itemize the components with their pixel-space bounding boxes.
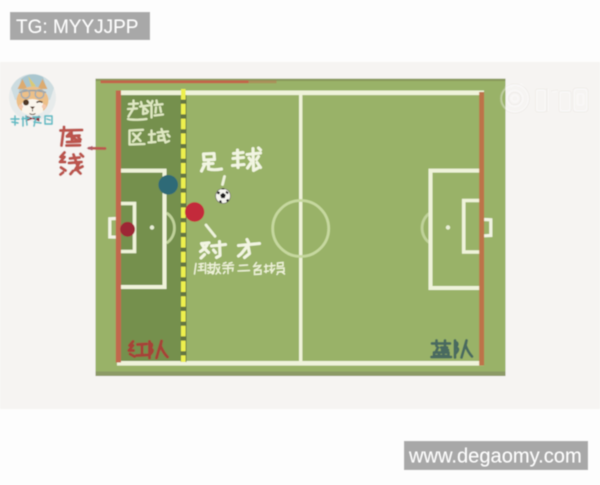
svg-text:TG: MYYJJPP: TG: MYYJJPP bbox=[16, 17, 138, 38]
svg-text:www.degaomy.com: www.degaomy.com bbox=[408, 446, 582, 468]
